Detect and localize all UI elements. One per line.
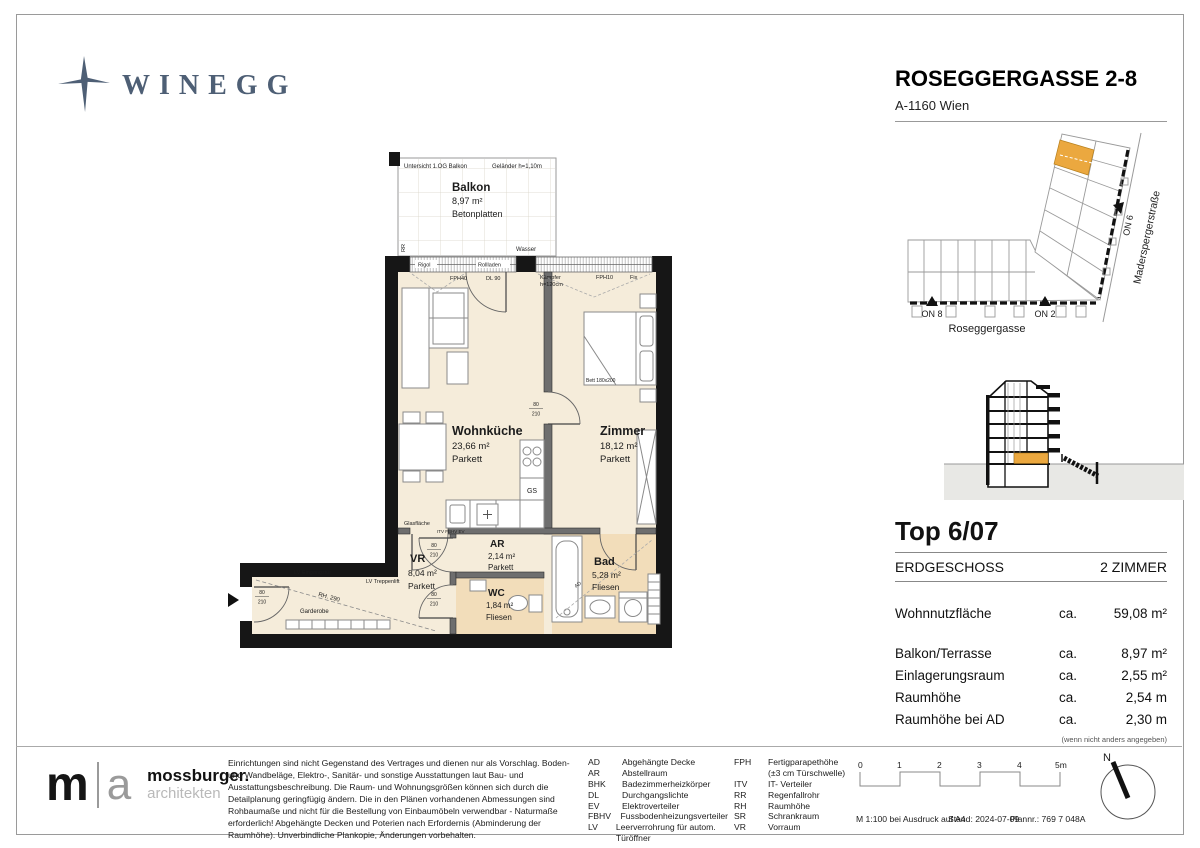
svg-text:80: 80 <box>431 592 437 598</box>
metric-row: Raumhöhe bei AD ca. 2,30 m <box>895 712 1167 734</box>
project-title: ROSEGGERGASSE 2-8 <box>895 66 1167 92</box>
legend-row: VRVorraum <box>734 822 854 833</box>
legend-row: EVElektroverteiler <box>588 801 728 812</box>
legend-row: LVLeerverrohrung für autom. Türöffner <box>588 822 728 833</box>
on2-label: ON 2 <box>1034 309 1055 319</box>
svg-text:FPH40: FPH40 <box>450 276 467 282</box>
room-balkon: Balkon <box>452 182 490 194</box>
room-vr: VR <box>410 553 425 565</box>
svg-text:23,66 m²: 23,66 m² <box>452 441 490 452</box>
north-needle-icon <box>1113 762 1128 798</box>
svg-text:18,12 m²: 18,12 m² <box>600 441 638 452</box>
header-rule <box>895 121 1167 122</box>
svg-text:8,04 m²: 8,04 m² <box>408 568 437 578</box>
wardrobe <box>637 430 656 524</box>
metric-row: Raumhöhe ca. 2,54 m <box>895 690 1167 712</box>
svg-text:RR: RR <box>401 244 407 252</box>
svg-text:Parkett: Parkett <box>488 563 514 572</box>
svg-text:5m: 5m <box>1055 760 1067 770</box>
svg-text:Kämpfer: Kämpfer <box>540 275 561 281</box>
legend-row: RRRegenfallrohr <box>734 790 854 801</box>
svg-text:210: 210 <box>430 553 439 559</box>
svg-text:Fliesen: Fliesen <box>486 613 512 622</box>
architect-logo: m a mossburger. architekten <box>46 762 249 808</box>
unit-metrics: Wohnnutzfläche ca. 59,08 m² Balkon/Terra… <box>895 606 1167 744</box>
brand-logo: WINEGG <box>122 70 297 102</box>
washbasin <box>585 596 615 618</box>
svg-text:LV Treppenlift: LV Treppenlift <box>366 579 400 585</box>
svg-text:Geländer h=1,10m: Geländer h=1,10m <box>492 164 542 170</box>
legend-row: ITVIT- Verteiler <box>734 779 854 790</box>
architect-mark-m: m <box>46 766 89 804</box>
metric-row: Wohnnutzfläche ca. 59,08 m² <box>895 606 1167 628</box>
floor-plan-sheet: WINEGG ROSEGGERGASSE 2-8 A-1160 Wien <box>0 0 1200 848</box>
svg-text:4: 4 <box>1017 760 1022 770</box>
legend-row: FPHFertigparapethöhe <box>734 757 854 768</box>
svg-text:80: 80 <box>259 590 265 596</box>
metric-row: Einlagerungsraum ca. 2,55 m² <box>895 668 1167 690</box>
svg-text:Glasfläche: Glasfläche <box>404 521 430 527</box>
plan-number: Plannr.: 769 7 048A <box>1010 814 1086 824</box>
legend-row: (±3 cm Türschwelle) <box>734 768 854 779</box>
svg-text:3: 3 <box>977 760 982 770</box>
site-plan: ON 8 ON 2 ON 6 Roseggergasse Madersperge… <box>888 128 1184 354</box>
room-ar: AR <box>490 539 505 550</box>
legend-row: ADAbgehängte Decke <box>588 757 728 768</box>
metrics-note: (wenn nicht anders angegeben) <box>895 735 1167 744</box>
on6-label: ON 6 <box>1121 214 1135 237</box>
room-wohnkueche: Wohnküche <box>452 424 523 438</box>
unit-room-count: 2 ZIMMER <box>1100 559 1167 575</box>
garderobe-bench <box>286 620 390 629</box>
svg-text:8,97 m²: 8,97 m² <box>452 196 483 206</box>
project-address: A-1160 Wien <box>895 98 1167 113</box>
north-arrow: N <box>1090 748 1166 824</box>
room-wc: WC <box>488 588 505 599</box>
on8-label: ON 8 <box>921 309 942 319</box>
winegg-star-icon <box>58 56 110 112</box>
washing-machine <box>619 592 647 622</box>
svg-text:h=120cm: h=120cm <box>540 282 563 288</box>
svg-text:80: 80 <box>431 543 437 549</box>
unit-floor: ERDGESCHOSS <box>895 559 1004 575</box>
svg-text:210: 210 <box>532 412 541 418</box>
legend-row: FBHVFussbodenheizungsverteiler <box>588 811 728 822</box>
legend-row: DLDurchgangslichte <box>588 790 728 801</box>
coffee-table <box>447 352 468 384</box>
svg-text:ITV FBHV EV: ITV FBHV EV <box>437 529 465 534</box>
kitchen-sink <box>450 505 465 523</box>
storage-closet <box>648 574 660 624</box>
legend-left: ADAbgehängte Decke ARAbstellraum BHKBade… <box>588 757 728 833</box>
svg-text:GS: GS <box>527 488 537 495</box>
room-zimmer: Zimmer <box>600 424 645 438</box>
svg-text:2,14 m²: 2,14 m² <box>488 552 515 561</box>
svg-text:Parkett: Parkett <box>452 454 482 465</box>
legend-row: BHKBadezimmerheizkörper <box>588 779 728 790</box>
svg-text:Rigol: Rigol <box>418 263 431 269</box>
svg-text:5,28 m²: 5,28 m² <box>592 570 621 580</box>
svg-text:1: 1 <box>897 760 902 770</box>
architect-mark-divider <box>97 762 99 808</box>
floor-plan: 6/07 80 210 80 210 80 210 80 210 Untersi… <box>225 145 695 670</box>
metric-row: Balkon/Terrasse ca. 8,97 m² <box>895 646 1167 668</box>
legend-right: FPHFertigparapethöhe (±3 cm Türschwelle)… <box>734 757 854 833</box>
svg-text:Rollladen: Rollladen <box>478 263 501 269</box>
svg-text:210: 210 <box>430 602 439 608</box>
street-maderspergerstrasse: Maderspergerstraße <box>1131 189 1163 285</box>
unit-info: Top 6/07 ERDGESCHOSS 2 ZIMMER Wohnnutzfl… <box>895 516 1167 744</box>
svg-text:FPH10: FPH10 <box>596 275 613 281</box>
section-highlight-floor <box>1014 453 1048 464</box>
svg-text:Untersicht 1.OG Balkon: Untersicht 1.OG Balkon <box>404 164 467 170</box>
svg-text:0: 0 <box>858 760 863 770</box>
plan-date: Stand: 2024-07-09 <box>948 814 1019 824</box>
street-roseggergasse: Roseggergasse <box>948 323 1025 335</box>
window-band-zimmer <box>536 257 652 272</box>
svg-text:Parkett: Parkett <box>600 454 630 465</box>
disclaimer-text: Einrichtungen sind nicht Gegenstand des … <box>228 757 580 841</box>
room-bad: Bad <box>594 556 615 568</box>
north-label: N <box>1103 752 1111 764</box>
building-section <box>938 358 1188 506</box>
svg-text:Garderobe: Garderobe <box>300 609 329 615</box>
svg-text:210: 210 <box>258 600 267 606</box>
svg-text:80: 80 <box>533 402 539 408</box>
hob-burner <box>523 447 531 455</box>
bathtub <box>552 536 582 622</box>
legend-row: SRSchrankraum <box>734 811 854 822</box>
footer-rule <box>16 746 1182 747</box>
svg-text:Bett 180x200: Bett 180x200 <box>586 378 616 384</box>
svg-text:Wasser: Wasser <box>516 247 536 253</box>
svg-text:Parkett: Parkett <box>408 581 436 591</box>
section-ground <box>944 464 1184 500</box>
legend-row: ARAbstellraum <box>588 768 728 779</box>
architect-mark-a: a <box>107 766 131 803</box>
unit-arrow-icon <box>228 593 239 607</box>
wc-basin <box>470 580 486 591</box>
svg-text:Fliesen: Fliesen <box>592 582 620 592</box>
unit-number: Top 6/07 <box>895 516 1167 553</box>
svg-text:1,84 m²: 1,84 m² <box>486 601 513 610</box>
svg-text:Fix: Fix <box>630 275 638 281</box>
scale-bar: 0 1 2 3 4 5m <box>856 756 1072 792</box>
unit-marker: 6/07 <box>225 596 226 614</box>
svg-text:LV Eingangstür: LV Eingangstür <box>294 570 331 576</box>
svg-text:Betonplatten: Betonplatten <box>452 209 503 219</box>
legend-row: RHRaumhöhe <box>734 801 854 812</box>
svg-text:DL 90: DL 90 <box>486 276 500 282</box>
svg-text:2: 2 <box>937 760 942 770</box>
